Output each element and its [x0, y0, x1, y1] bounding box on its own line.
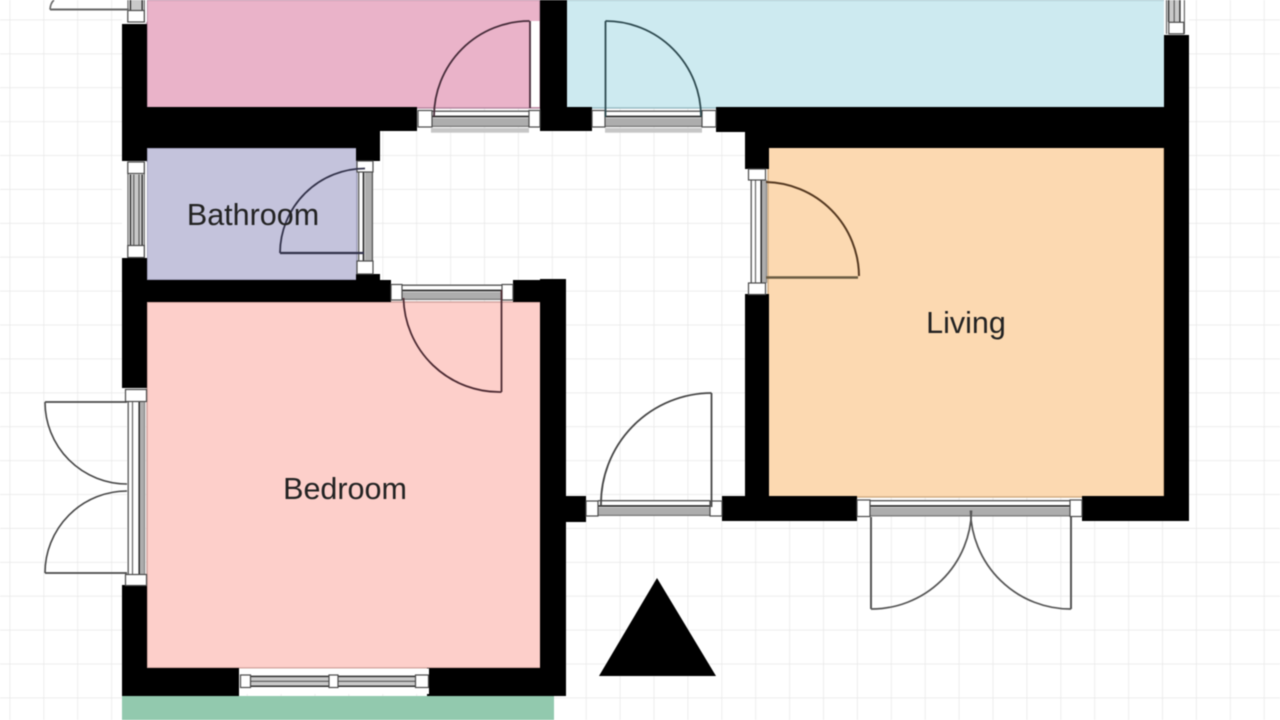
svg-text:Living: Living	[926, 306, 1006, 340]
svg-text:Bedroom: Bedroom	[283, 472, 407, 506]
svg-text:Bathroom: Bathroom	[187, 198, 319, 232]
